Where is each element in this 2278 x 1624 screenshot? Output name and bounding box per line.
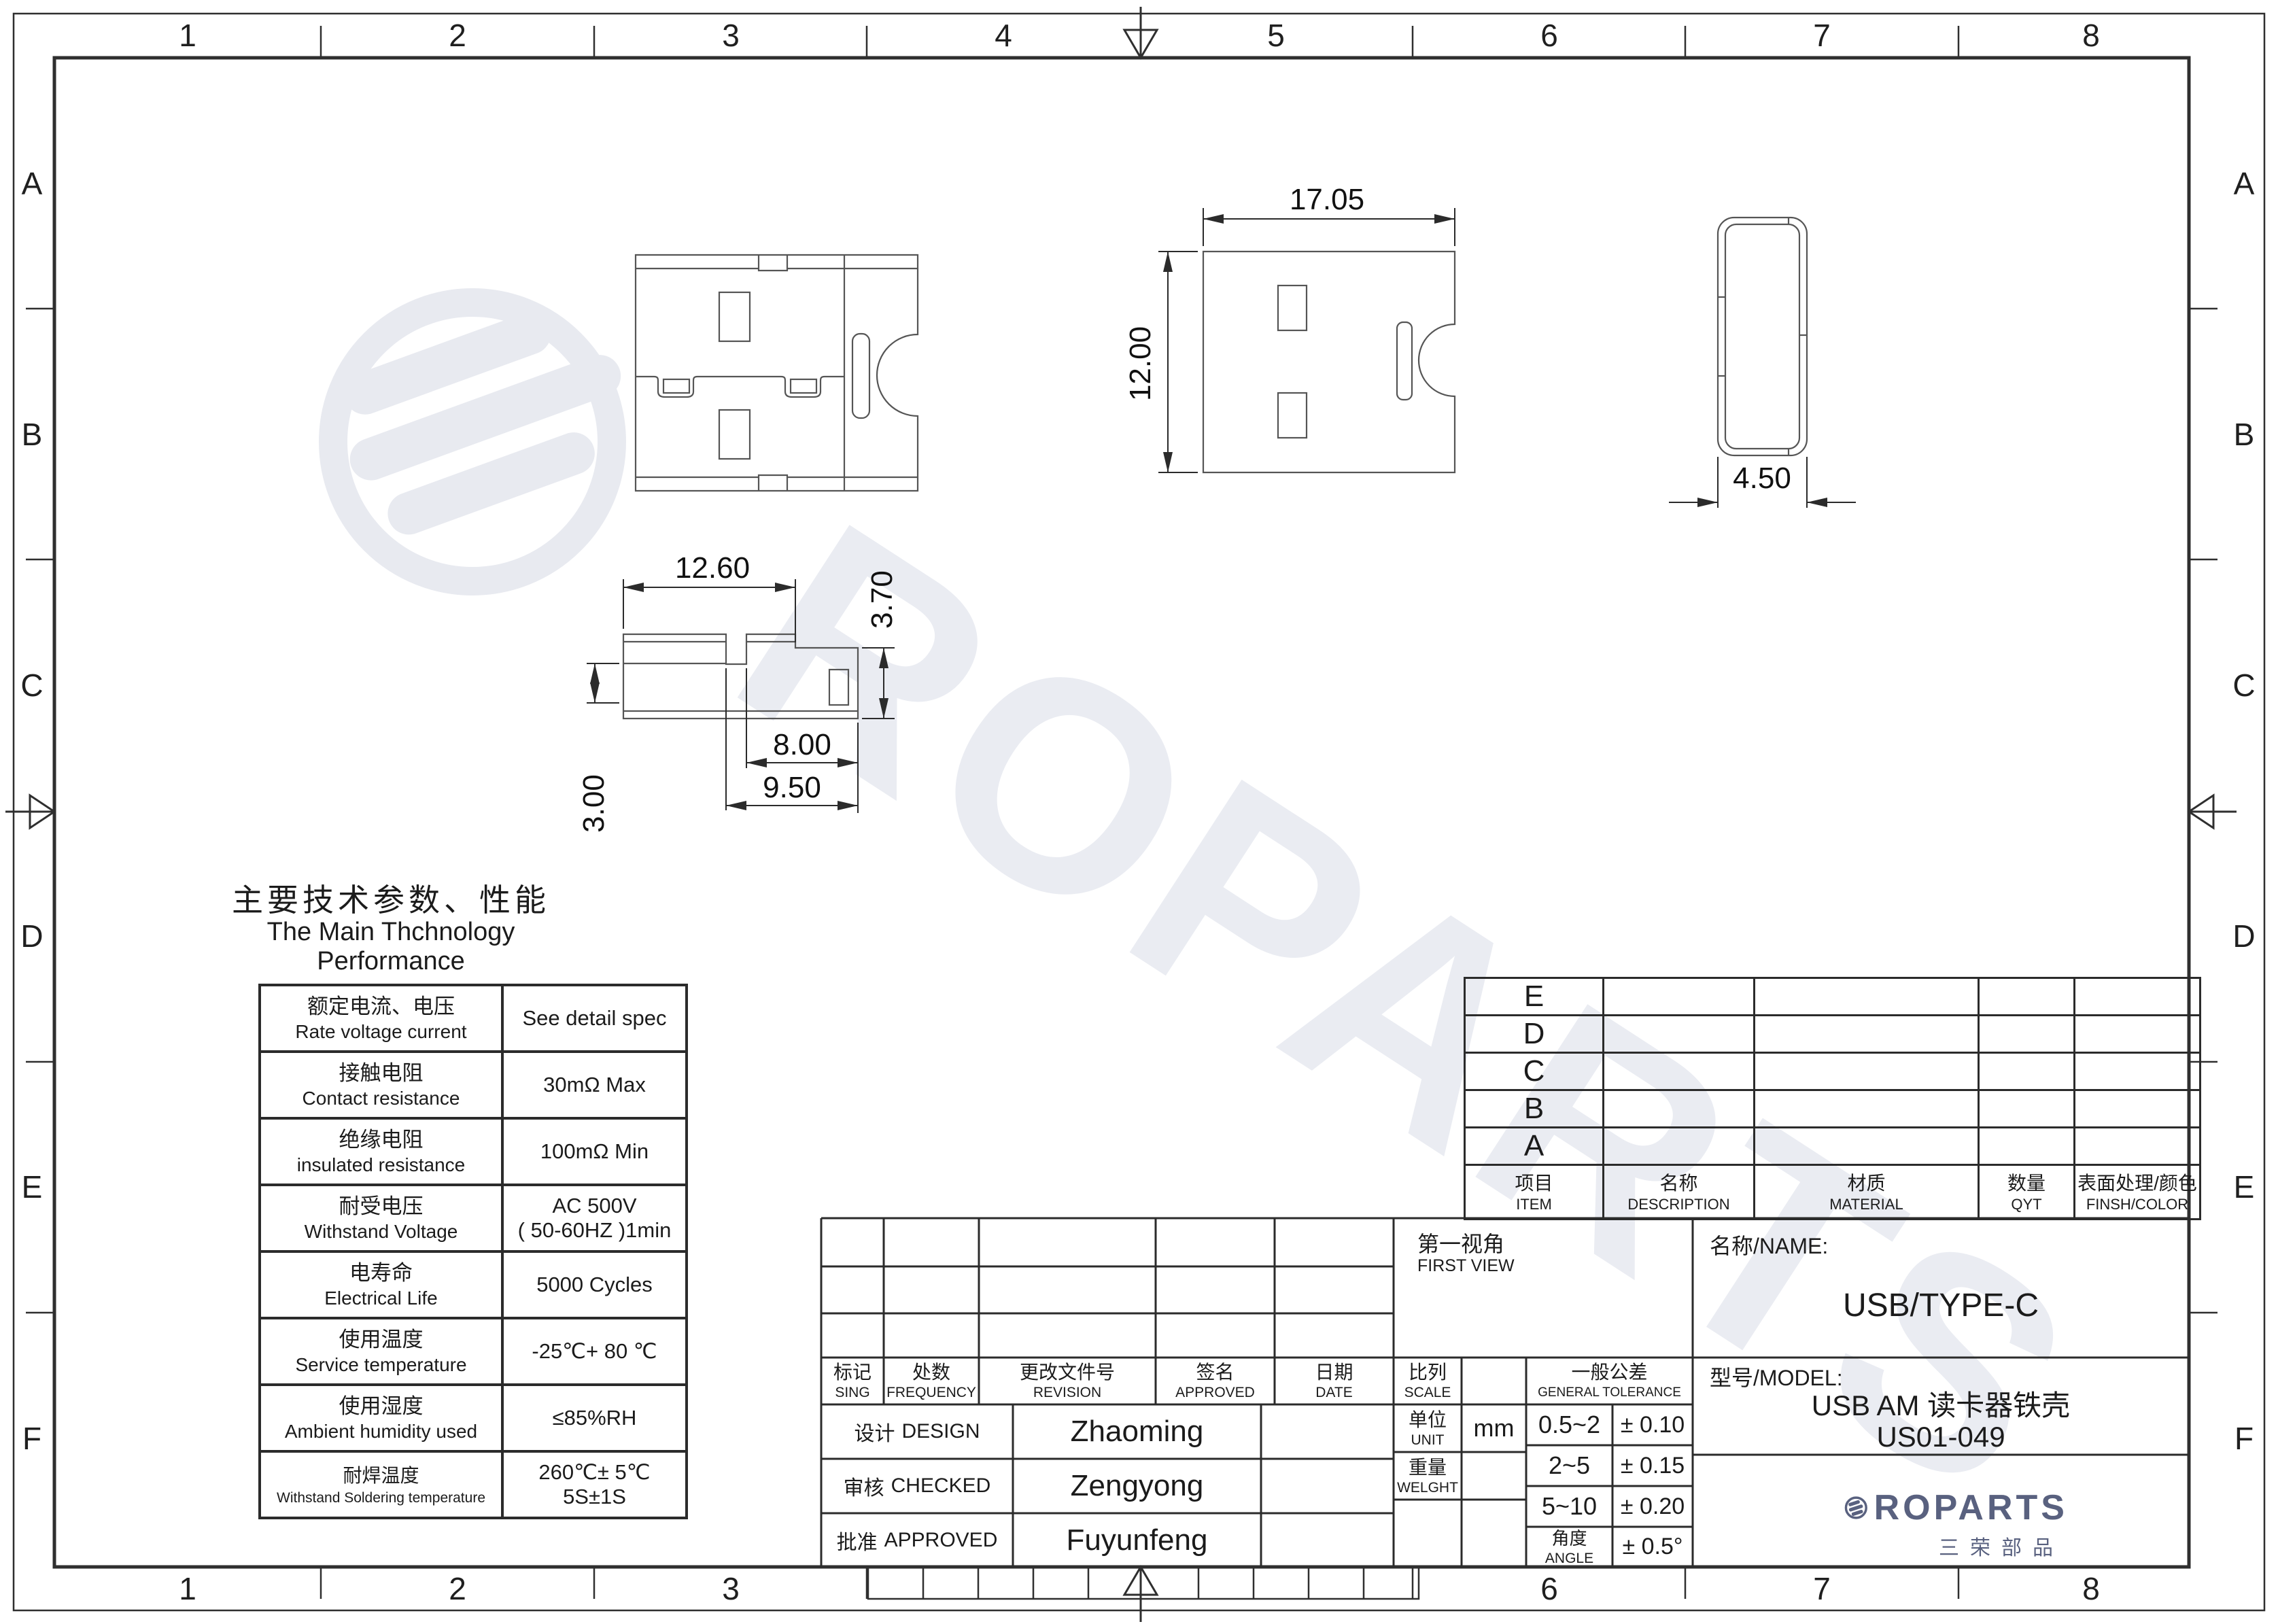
tolerance-value: ± 0.10 (1612, 1404, 1693, 1445)
center-mark-bottom (1124, 1567, 1157, 1622)
name-label: 名称/NAME: (1710, 1229, 1828, 1260)
zone-label: 8 (2067, 18, 2115, 52)
tolerance-range: 5~10 (1526, 1486, 1612, 1527)
view-plan-dimensioned (1203, 252, 1455, 472)
zone-label: 5 (1252, 18, 1300, 52)
bom-table: E D C B A 项目ITEM 名称DESCRIPTION (1464, 977, 2201, 1220)
zone-label: 1 (164, 18, 211, 52)
view-end (1718, 218, 1807, 455)
performance-title-cn: 主要技术参数、性能 (231, 876, 551, 920)
scale-label: 比列SCALE (1394, 1360, 1462, 1402)
zone-label: C (2220, 668, 2268, 702)
model-value-line1: USB AM 读卡器铁壳 (1693, 1385, 2189, 1421)
zone-label: D (8, 919, 56, 953)
table-row: B (1465, 1090, 2201, 1128)
zone-label: 4 (980, 18, 1027, 52)
zone-label: C (8, 668, 56, 702)
zone-label: 3 (707, 18, 755, 52)
first-view-cn: 第一视角 (1417, 1227, 1504, 1258)
weight-label: 重量WELGHT (1394, 1452, 1462, 1500)
zone-label: F (2220, 1421, 2268, 1455)
zone-label: 6 (1525, 1572, 1573, 1606)
logo-chinese-name: 三荣部品 (1844, 1531, 2068, 1561)
rev-header-date: 日期DATE (1275, 1360, 1394, 1402)
zone-label: A (2220, 167, 2268, 201)
dim-side-outer: 9.50 (763, 771, 821, 804)
zone-label: F (8, 1421, 56, 1455)
zone-label: D (2220, 919, 2268, 953)
zone-label: E (8, 1170, 56, 1204)
bom-header-row: 项目ITEM 名称DESCRIPTION 材质MATERIAL 数量QYT 表面… (1465, 1165, 2201, 1220)
logo-emblem-icon (1844, 1486, 1869, 1530)
signoff-checked-name: Zengyong (1013, 1459, 1261, 1513)
table-row: A (1465, 1128, 2201, 1165)
zone-label: 2 (434, 1572, 481, 1606)
first-view-en: FIRST VIEW (1417, 1256, 1515, 1276)
drawing-sheet: ROPARTS (0, 0, 2278, 1624)
zone-label: 7 (1798, 1572, 1846, 1606)
signoff-approved-name: Fuyunfeng (1013, 1513, 1261, 1568)
view-plan (636, 255, 918, 491)
tolerance-range: 0.5~2 (1526, 1404, 1612, 1445)
dim-plan-height: 12.00 (1124, 326, 1157, 401)
dim-plan-width: 17.05 (1290, 183, 1364, 216)
model-value-line2: US01-049 (1693, 1421, 2189, 1453)
table-row: 电寿命Electrical Life 5000 Cycles (260, 1251, 687, 1318)
table-row: 绝缘电阻insulated resistance 100mΩ Min (260, 1118, 687, 1185)
zone-label: A (8, 167, 56, 201)
performance-title-en: The Main Thchnology Performance (190, 918, 591, 976)
signoff-design-name: Zhaoming (1013, 1404, 1261, 1459)
table-row: 耐焊温度Withstand Soldering temperature 260℃… (260, 1451, 687, 1518)
table-row: 耐受电压Withstand Voltage AC 500V( 50-60HZ )… (260, 1185, 687, 1251)
table-row: 额定电流、电压Rate voltage current See detail s… (260, 985, 687, 1052)
table-row: 使用湿度Ambient humidity used ≤85%RH (260, 1385, 687, 1451)
company-logo: ROPARTS 三荣部品 (1844, 1486, 2068, 1561)
zone-label: 8 (2067, 1572, 2115, 1606)
unit-value: mm (1462, 1404, 1526, 1452)
rev-header-frequency: 处数FREQUENCY (884, 1360, 979, 1402)
zone-label: B (8, 417, 56, 451)
zone-label: 3 (707, 1572, 755, 1606)
rev-header-sing: 标记SING (821, 1360, 884, 1402)
performance-table: 额定电流、电压Rate voltage current See detail s… (258, 984, 688, 1519)
tolerance-header: 一般公差GENERAL TOLERANCE (1526, 1360, 1693, 1402)
name-value: USB/TYPE-C (1693, 1264, 2189, 1346)
rev-header-revision: 更改文件号REVISION (979, 1360, 1156, 1402)
table-row: E (1465, 978, 2201, 1016)
signoff-approved-label: 批准APPROVED (821, 1513, 1013, 1568)
table-row: C (1465, 1053, 2201, 1090)
zone-label: 6 (1525, 18, 1573, 52)
table-row: 使用温度Service temperature -25℃+ 80 ℃ (260, 1318, 687, 1385)
dim-side-inner: 8.00 (773, 728, 831, 761)
zone-label: 2 (434, 18, 481, 52)
dim-side-height: 3.70 (865, 570, 899, 629)
unit-label: 单位UNIT (1394, 1404, 1462, 1452)
zone-label: 1 (164, 1572, 211, 1606)
tolerance-value: ± 0.5° (1612, 1527, 1693, 1567)
table-row: D (1465, 1016, 2201, 1053)
zone-label: 7 (1798, 18, 1846, 52)
zone-label: B (2220, 417, 2268, 451)
tolerance-range: 2~5 (1526, 1445, 1612, 1486)
signoff-checked-label: 审核CHECKED (821, 1459, 1013, 1513)
rev-header-approved: 签名APPROVED (1156, 1360, 1275, 1402)
dim-side-left: 3.00 (577, 774, 610, 833)
dim-side-width: 12.60 (675, 551, 750, 585)
zone-label: E (2220, 1170, 2268, 1204)
center-mark-right (2189, 795, 2237, 828)
tolerance-value: ± 0.15 (1612, 1445, 1693, 1486)
tolerance-value: ± 0.20 (1612, 1486, 1693, 1527)
table-row: 接触电阻Contact resistance 30mΩ Max (260, 1052, 687, 1118)
logo-wordmark: ROPARTS (1874, 1487, 2068, 1528)
dim-end-width: 4.50 (1733, 462, 1791, 495)
signoff-design-label: 设计DESIGN (821, 1404, 1013, 1459)
scale-value (1462, 1360, 1526, 1402)
tolerance-angle-label: 角度 ANGLE (1526, 1527, 1612, 1567)
